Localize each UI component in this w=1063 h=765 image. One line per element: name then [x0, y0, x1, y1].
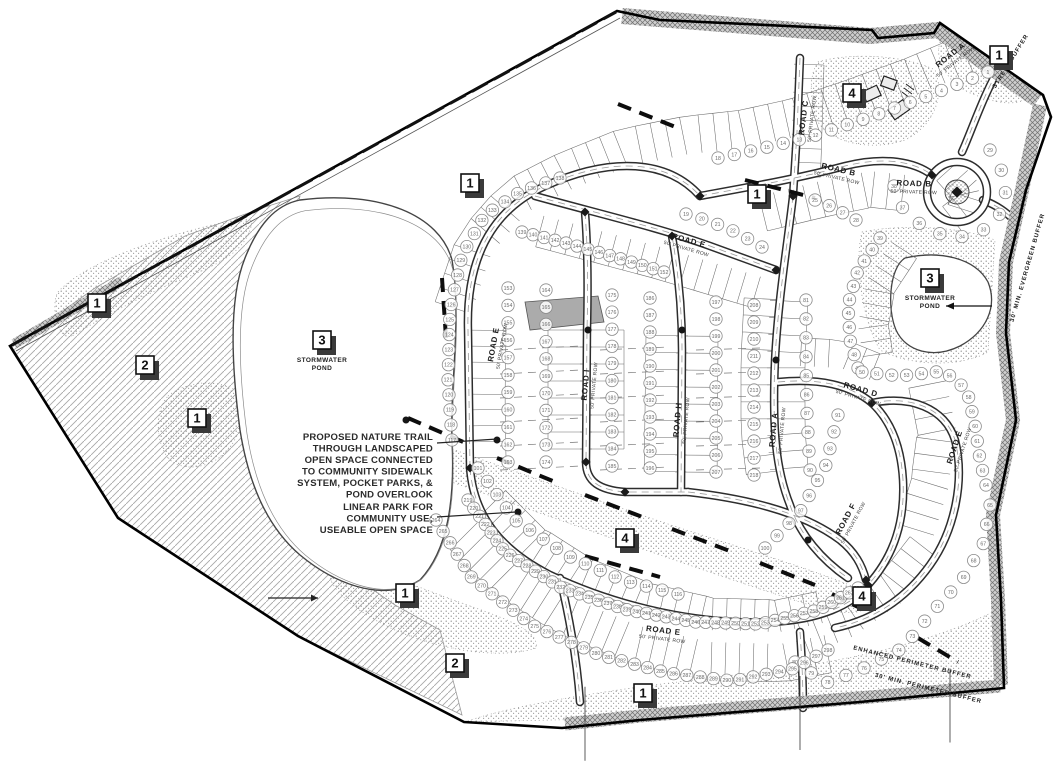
- road-name-text: ROAD B: [896, 178, 931, 188]
- lot-number: 267: [451, 548, 463, 560]
- callout-number: 1: [753, 187, 760, 202]
- lot-number: 137: [540, 177, 552, 189]
- lot-number-text: 71: [934, 604, 940, 610]
- lot-number: 122: [442, 358, 454, 370]
- lot-number-text: 185: [608, 464, 617, 470]
- lot-number-text: 277: [555, 635, 564, 641]
- lot-number-text: 253: [761, 621, 770, 627]
- lot-number-text: 101: [474, 466, 483, 472]
- lot-number-text: 126: [447, 302, 456, 308]
- lot-number-text: 132: [478, 218, 487, 224]
- lot-number: 174: [540, 456, 552, 468]
- lot-number: 209: [748, 316, 760, 328]
- lot-number: 114: [640, 580, 652, 592]
- lot-number: 277: [553, 631, 565, 643]
- lot-number: 99: [771, 529, 783, 541]
- lot-number-text: 110: [581, 561, 589, 567]
- lot-number-text: 214: [750, 405, 759, 411]
- utility-node-dot: [805, 537, 812, 544]
- lot-numbers: 1234567891011121314151617181920212223242…: [430, 66, 1012, 689]
- lot-number-text: 197: [712, 300, 721, 306]
- lot-number-text: 204: [712, 419, 721, 425]
- road-row-text: 50' PRIVATE ROW: [589, 362, 599, 409]
- lot-number: 123: [443, 343, 455, 355]
- lot-number-text: 123: [445, 347, 454, 353]
- lot-number: 135: [511, 187, 523, 199]
- lot-number-text: 170: [542, 391, 551, 397]
- lot-number: 270: [475, 579, 487, 591]
- lot-number-text: 142: [551, 238, 560, 244]
- lot-number-text: 254: [771, 618, 780, 624]
- lot-number: 36: [913, 217, 925, 229]
- lot-number: 268: [458, 559, 470, 571]
- lot-number-text: 119: [446, 408, 454, 414]
- lot-number-text: 275: [530, 624, 539, 630]
- lot-number: 278: [565, 636, 577, 648]
- lot-number-text: 250: [731, 621, 740, 627]
- lot-number-text: 203: [712, 402, 721, 408]
- lot-number-text: 21: [715, 222, 721, 228]
- lot-number-text: 37: [900, 205, 906, 211]
- lot-number: 63: [976, 464, 988, 476]
- road-label: ROAD A50' PRIVATE ROW: [767, 406, 788, 454]
- callout-caption-line: POND: [312, 365, 332, 372]
- lot-number: 167: [540, 335, 552, 347]
- lot-number: 19: [680, 208, 692, 220]
- lot-number: 55: [930, 366, 942, 378]
- lot-number: 91: [832, 409, 844, 421]
- lot-number-text: 279: [579, 646, 588, 652]
- lot-number-text: 91: [835, 413, 841, 419]
- lot-number: 198: [710, 313, 722, 325]
- lot-number: 8: [873, 108, 885, 120]
- lot-number-text: 23: [745, 236, 751, 242]
- lot-number: 294: [773, 665, 785, 677]
- lot-number-text: 173: [542, 443, 551, 449]
- lot-number-text: 105: [512, 519, 521, 525]
- lot-number: 103: [491, 488, 503, 500]
- lot-number-text: 106: [525, 528, 534, 534]
- lot-number-text: 298: [824, 648, 833, 654]
- lot-number-text: 47: [847, 339, 853, 345]
- lot-number: 201: [710, 364, 722, 376]
- lot-number-text: 103: [493, 492, 502, 498]
- lot-number: 293: [760, 668, 772, 680]
- callout-marker: 1: [748, 185, 771, 209]
- trail-dash-segment: [618, 104, 678, 128]
- lot-number: 106: [523, 524, 535, 536]
- lot-number: 7: [888, 102, 900, 114]
- lot-number-text: 124: [445, 332, 454, 338]
- lot-number-text: 6: [909, 100, 912, 106]
- lot-number-text: 255: [780, 616, 789, 622]
- lot-number-text: 98: [786, 521, 792, 527]
- lot-number-text: 113: [626, 580, 634, 586]
- lot-number-text: 251: [741, 621, 750, 627]
- lot-number-text: 116: [674, 592, 682, 598]
- lot-number-text: 118: [447, 423, 455, 429]
- lot-number: 48: [848, 348, 860, 360]
- lot-number: 194: [644, 428, 656, 440]
- lot-number: 93: [824, 442, 836, 454]
- lot-number-text: 4: [940, 88, 943, 94]
- lot-number: 113: [624, 576, 636, 588]
- lot-number: 148: [614, 253, 626, 265]
- callout-number: 1: [93, 296, 100, 311]
- lot-number-text: 74: [896, 648, 902, 654]
- lot-number: 66: [980, 518, 992, 530]
- lot-number: 172: [540, 421, 552, 433]
- lot-number-text: 78: [825, 680, 831, 686]
- lot-number: 211: [748, 350, 760, 362]
- lot-number-text: 274: [519, 616, 528, 622]
- lot-number: 136: [525, 182, 537, 194]
- lot-number: 298: [822, 644, 834, 656]
- callout-number: 4: [621, 531, 629, 546]
- lot-number-text: 48: [851, 352, 857, 358]
- lot-number: 180: [606, 374, 618, 386]
- utility-node-dot: [494, 437, 501, 444]
- lot-number-text: 137: [541, 181, 550, 187]
- lot-number-text: 217: [750, 456, 759, 462]
- lot-number: 279: [577, 642, 589, 654]
- lot-number-text: 93: [827, 446, 833, 452]
- lot-number-text: 285: [656, 669, 665, 675]
- rear-lot-dashed-line: [500, 442, 760, 446]
- lot-number: 199: [710, 330, 722, 342]
- utility-node-dot: [585, 327, 592, 334]
- lot-number: 98: [783, 517, 795, 529]
- lot-number-text: 210: [750, 337, 759, 343]
- lot-number: 150: [636, 259, 648, 271]
- lot-number-text: 109: [566, 555, 575, 561]
- lot-number-text: 133: [488, 208, 497, 214]
- callout-number: 1: [193, 411, 200, 426]
- lot-number-text: 18: [715, 156, 721, 162]
- lot-number-text: 280: [592, 651, 601, 657]
- lot-number-text: 50: [859, 370, 865, 376]
- lot-number-text: 140: [529, 233, 538, 239]
- lot-number-text: 82: [803, 317, 809, 323]
- lot-number-text: 154: [504, 303, 513, 309]
- lot-number-text: 104: [502, 506, 511, 512]
- lot-number: 131: [468, 227, 480, 239]
- lot-number: 74: [893, 644, 905, 656]
- lot-number: 14: [777, 137, 789, 149]
- lot-number: 189: [644, 343, 656, 355]
- lot-number-text: 99: [774, 533, 780, 539]
- lot-number-text: 77: [843, 673, 849, 679]
- lot-number-text: 8: [877, 112, 880, 118]
- lot-number-text: 88: [805, 430, 811, 436]
- lot-number: 271: [486, 588, 498, 600]
- lot-number-text: 283: [630, 662, 639, 668]
- note-text-line: PROPOSED NATURE TRAIL: [303, 432, 433, 443]
- lot-number-text: 186: [646, 296, 655, 302]
- lot-number-text: 158: [504, 373, 513, 379]
- lot-number: 151: [647, 262, 659, 274]
- lot-number-text: 62: [977, 454, 983, 460]
- lot-number: 31: [999, 186, 1011, 198]
- note-text-line: THROUGH LANDSCAPED: [313, 444, 433, 455]
- lot-number-text: 266: [446, 541, 455, 547]
- lot-number: 85: [800, 369, 812, 381]
- lot-number-text: 52: [889, 373, 895, 379]
- lot-number-text: 289: [709, 676, 718, 682]
- lot-number-text: 59: [969, 409, 975, 415]
- lot-number: 208: [748, 299, 760, 311]
- site-plan-drawing: 1234567891011121314151617181920212223242…: [0, 0, 1063, 765]
- lot-number: 67: [977, 537, 989, 549]
- lot-number: 281: [602, 651, 614, 663]
- lot-number: 160: [502, 404, 514, 416]
- lot-number-text: 191: [646, 381, 655, 387]
- lot-number: 284: [641, 661, 653, 673]
- lot-number-text: 127: [450, 288, 459, 294]
- lot-number-text: 85: [803, 373, 809, 379]
- lot-number-text: 161: [504, 425, 513, 431]
- lot-number: 50: [856, 366, 868, 378]
- lot-number: 176: [606, 306, 618, 318]
- lot-number: 62: [973, 450, 985, 462]
- lot-number-text: 67: [980, 541, 986, 547]
- lot-number-text: 70: [948, 590, 954, 596]
- lot-number-text: 276: [543, 629, 552, 635]
- lot-number: 210: [748, 333, 760, 345]
- lot-number: 46: [843, 321, 855, 333]
- lot-number: 22: [727, 225, 739, 237]
- lot-number-text: 153: [504, 286, 513, 292]
- lot-number: 64: [980, 479, 992, 491]
- lot-number: 145: [582, 243, 594, 255]
- lot-number: 177: [606, 323, 618, 335]
- lot-number: 105: [510, 515, 522, 527]
- lot-number: 274: [518, 612, 530, 624]
- lot-number: 282: [615, 655, 627, 667]
- lot-number: 273: [507, 604, 519, 616]
- lot-number-text: 245: [681, 618, 690, 624]
- lot-number: 61: [971, 435, 983, 447]
- lot-number-text: 183: [608, 430, 617, 436]
- lot-number-text: 115: [658, 588, 666, 594]
- lot-number-text: 139: [518, 230, 527, 236]
- lot-number-text: 89: [806, 449, 812, 455]
- lot-number-text: 9: [862, 117, 865, 123]
- lot-number: 207: [710, 466, 722, 478]
- lot-number-text: 36: [916, 221, 922, 227]
- lot-number-text: 293: [762, 672, 771, 678]
- lot-number: 90: [804, 464, 816, 476]
- site-plan-sheet: 1234567891011121314151617181920212223242…: [0, 0, 1063, 765]
- lot-number-text: 259: [819, 605, 828, 611]
- lot-number: 265: [437, 525, 449, 537]
- lot-number: 20: [696, 213, 708, 225]
- lot-number: 202: [710, 381, 722, 393]
- lot-number-text: 73: [909, 634, 915, 640]
- lot-number: 193: [644, 411, 656, 423]
- note-text-line: POND OVERLOOK: [346, 490, 433, 501]
- lot-number-text: 199: [712, 334, 721, 340]
- lot-number-text: 19: [683, 212, 689, 218]
- lot-number: 165: [540, 301, 552, 313]
- lot-number-text: 39: [877, 236, 883, 242]
- lot-number: 164: [540, 284, 552, 296]
- lot-number: 88: [802, 426, 814, 438]
- lot-number: 213: [748, 384, 760, 396]
- lot-number: 109: [564, 551, 576, 563]
- lot-number-text: 201: [712, 368, 721, 374]
- lot-number: 147: [603, 249, 615, 261]
- lot-number-text: 32: [997, 212, 1003, 218]
- lot-number: 45: [842, 307, 854, 319]
- lot-number-text: 291: [736, 677, 745, 683]
- lot-number: 44: [843, 293, 855, 305]
- lot-number: 51: [871, 367, 883, 379]
- lot-number-text: 22: [730, 229, 736, 235]
- lot-number-text: 58: [966, 395, 972, 401]
- lot-number: 161: [502, 421, 514, 433]
- lot-number: 34: [956, 230, 968, 242]
- lot-number-text: 16: [748, 149, 754, 155]
- lot-number: 110: [579, 557, 591, 569]
- lot-number-text: 179: [608, 361, 617, 367]
- lot-number: 186: [644, 292, 656, 304]
- lot-number-text: 68: [971, 558, 977, 564]
- lot-number: 153: [502, 282, 514, 294]
- lot-number: 283: [628, 658, 640, 670]
- lot-number-text: 26: [826, 203, 832, 209]
- lot-number: 170: [540, 387, 552, 399]
- lot-number-text: 141: [540, 235, 549, 241]
- lot-number: 25: [809, 194, 821, 206]
- note-text-line: SYSTEM, POCKET PARKS, &: [297, 478, 433, 489]
- lot-number-text: 17: [731, 152, 737, 158]
- lot-number: 197: [710, 296, 722, 308]
- lot-number: 4: [935, 84, 947, 96]
- lot-number: 29: [984, 144, 996, 156]
- lot-number-text: 242: [652, 613, 661, 619]
- lot-number: 129: [455, 254, 467, 266]
- lot-number-text: 159: [504, 390, 513, 396]
- lot-number-text: 207: [712, 470, 721, 476]
- lot-number: 15: [761, 141, 773, 153]
- lot-number-text: 211: [750, 354, 758, 360]
- lot-number: 195: [644, 445, 656, 457]
- road-label: ROAD H50' PRIVATE ROW: [671, 396, 692, 444]
- lot-number-text: 25: [812, 198, 818, 204]
- lot-number-text: 2: [971, 76, 974, 82]
- lot-number-text: 11: [829, 128, 834, 134]
- lot-number-text: 57: [958, 383, 964, 389]
- lot-number-text: 261: [836, 595, 845, 601]
- lot-number: 190: [644, 360, 656, 372]
- lot-number: 119: [444, 404, 456, 416]
- lot-number-text: 294: [775, 669, 784, 675]
- lot-number: 111: [594, 564, 606, 576]
- lot-number-text: 147: [605, 253, 614, 259]
- lot-number-text: 196: [646, 466, 655, 472]
- lot-number-text: 175: [608, 293, 617, 299]
- lot-number-text: 72: [922, 619, 928, 625]
- lot-number: 217: [748, 452, 760, 464]
- lot-number: 290: [721, 674, 733, 686]
- lot-number-text: 34: [959, 234, 965, 240]
- lot-number-text: 24: [759, 245, 765, 251]
- lot-number-text: 102: [483, 479, 492, 485]
- callout-number: 1: [995, 48, 1002, 63]
- lot-number: 162: [502, 438, 514, 450]
- lot-number: 275: [528, 620, 540, 632]
- lot-number-text: 151: [649, 266, 658, 272]
- lot-number: 9: [857, 113, 869, 125]
- lot-number-text: 188: [646, 330, 655, 336]
- lot-number: 149: [625, 256, 637, 268]
- lot-number-text: 35: [937, 231, 943, 237]
- lot-number: 120: [443, 389, 455, 401]
- lot-number: 205: [710, 432, 722, 444]
- lot-number: 192: [644, 394, 656, 406]
- lot-number: 216: [748, 435, 760, 447]
- lot-number: 159: [502, 386, 514, 398]
- lot-number: 96: [803, 489, 815, 501]
- lot-number: 206: [710, 449, 722, 461]
- lot-number: 1: [982, 66, 994, 78]
- lot-number-text: 292: [749, 675, 758, 681]
- lot-number-text: 268: [460, 563, 469, 569]
- lot-number: 17: [728, 148, 740, 160]
- lot-number-text: 33: [981, 228, 987, 234]
- lot-number-text: 190: [646, 364, 655, 370]
- lot-number-text: 169: [542, 374, 551, 380]
- lot-number-text: 295: [788, 667, 797, 673]
- lot-number-text: 172: [542, 425, 551, 431]
- lot-number-text: 160: [504, 408, 513, 414]
- lot-number-text: 1: [987, 70, 990, 76]
- callout-marker: 1: [461, 174, 484, 198]
- lot-number: 182: [606, 409, 618, 421]
- lot-number: 32: [993, 208, 1005, 220]
- lot-number: 163: [502, 456, 514, 468]
- lot-number: 79: [805, 667, 817, 679]
- lot-number-text: 10: [844, 122, 850, 128]
- lot-number: 101: [472, 462, 484, 474]
- lot-number: 78: [821, 676, 833, 688]
- lot-number: 296: [798, 656, 810, 668]
- lot-number: 84: [800, 350, 812, 362]
- lot-number: 276: [541, 625, 553, 637]
- road-row-text: 50' PRIVATE ROW: [890, 189, 937, 197]
- lot-number: 132: [476, 214, 488, 226]
- lot-number-text: 171: [542, 408, 551, 414]
- lot-number-text: 107: [539, 537, 548, 543]
- lot-number-text: 194: [646, 432, 655, 438]
- lot-number-text: 131: [470, 231, 479, 237]
- lot-number-text: 100: [761, 546, 770, 552]
- lot-number-text: 83: [803, 336, 809, 342]
- lot-number: 5: [920, 90, 932, 102]
- lot-number-text: 13: [797, 137, 803, 143]
- lot-number: 191: [644, 377, 656, 389]
- lot-number: 83: [800, 332, 812, 344]
- road-network: [403, 58, 1015, 708]
- lot-number-text: 120: [445, 393, 454, 399]
- lot-number: 35: [934, 227, 946, 239]
- lot-number-text: 265: [439, 529, 448, 535]
- lot-number-text: 20: [699, 217, 705, 223]
- lot-number: 196: [644, 462, 656, 474]
- lot-number: 86: [800, 388, 812, 400]
- lot-number: 40: [866, 243, 878, 255]
